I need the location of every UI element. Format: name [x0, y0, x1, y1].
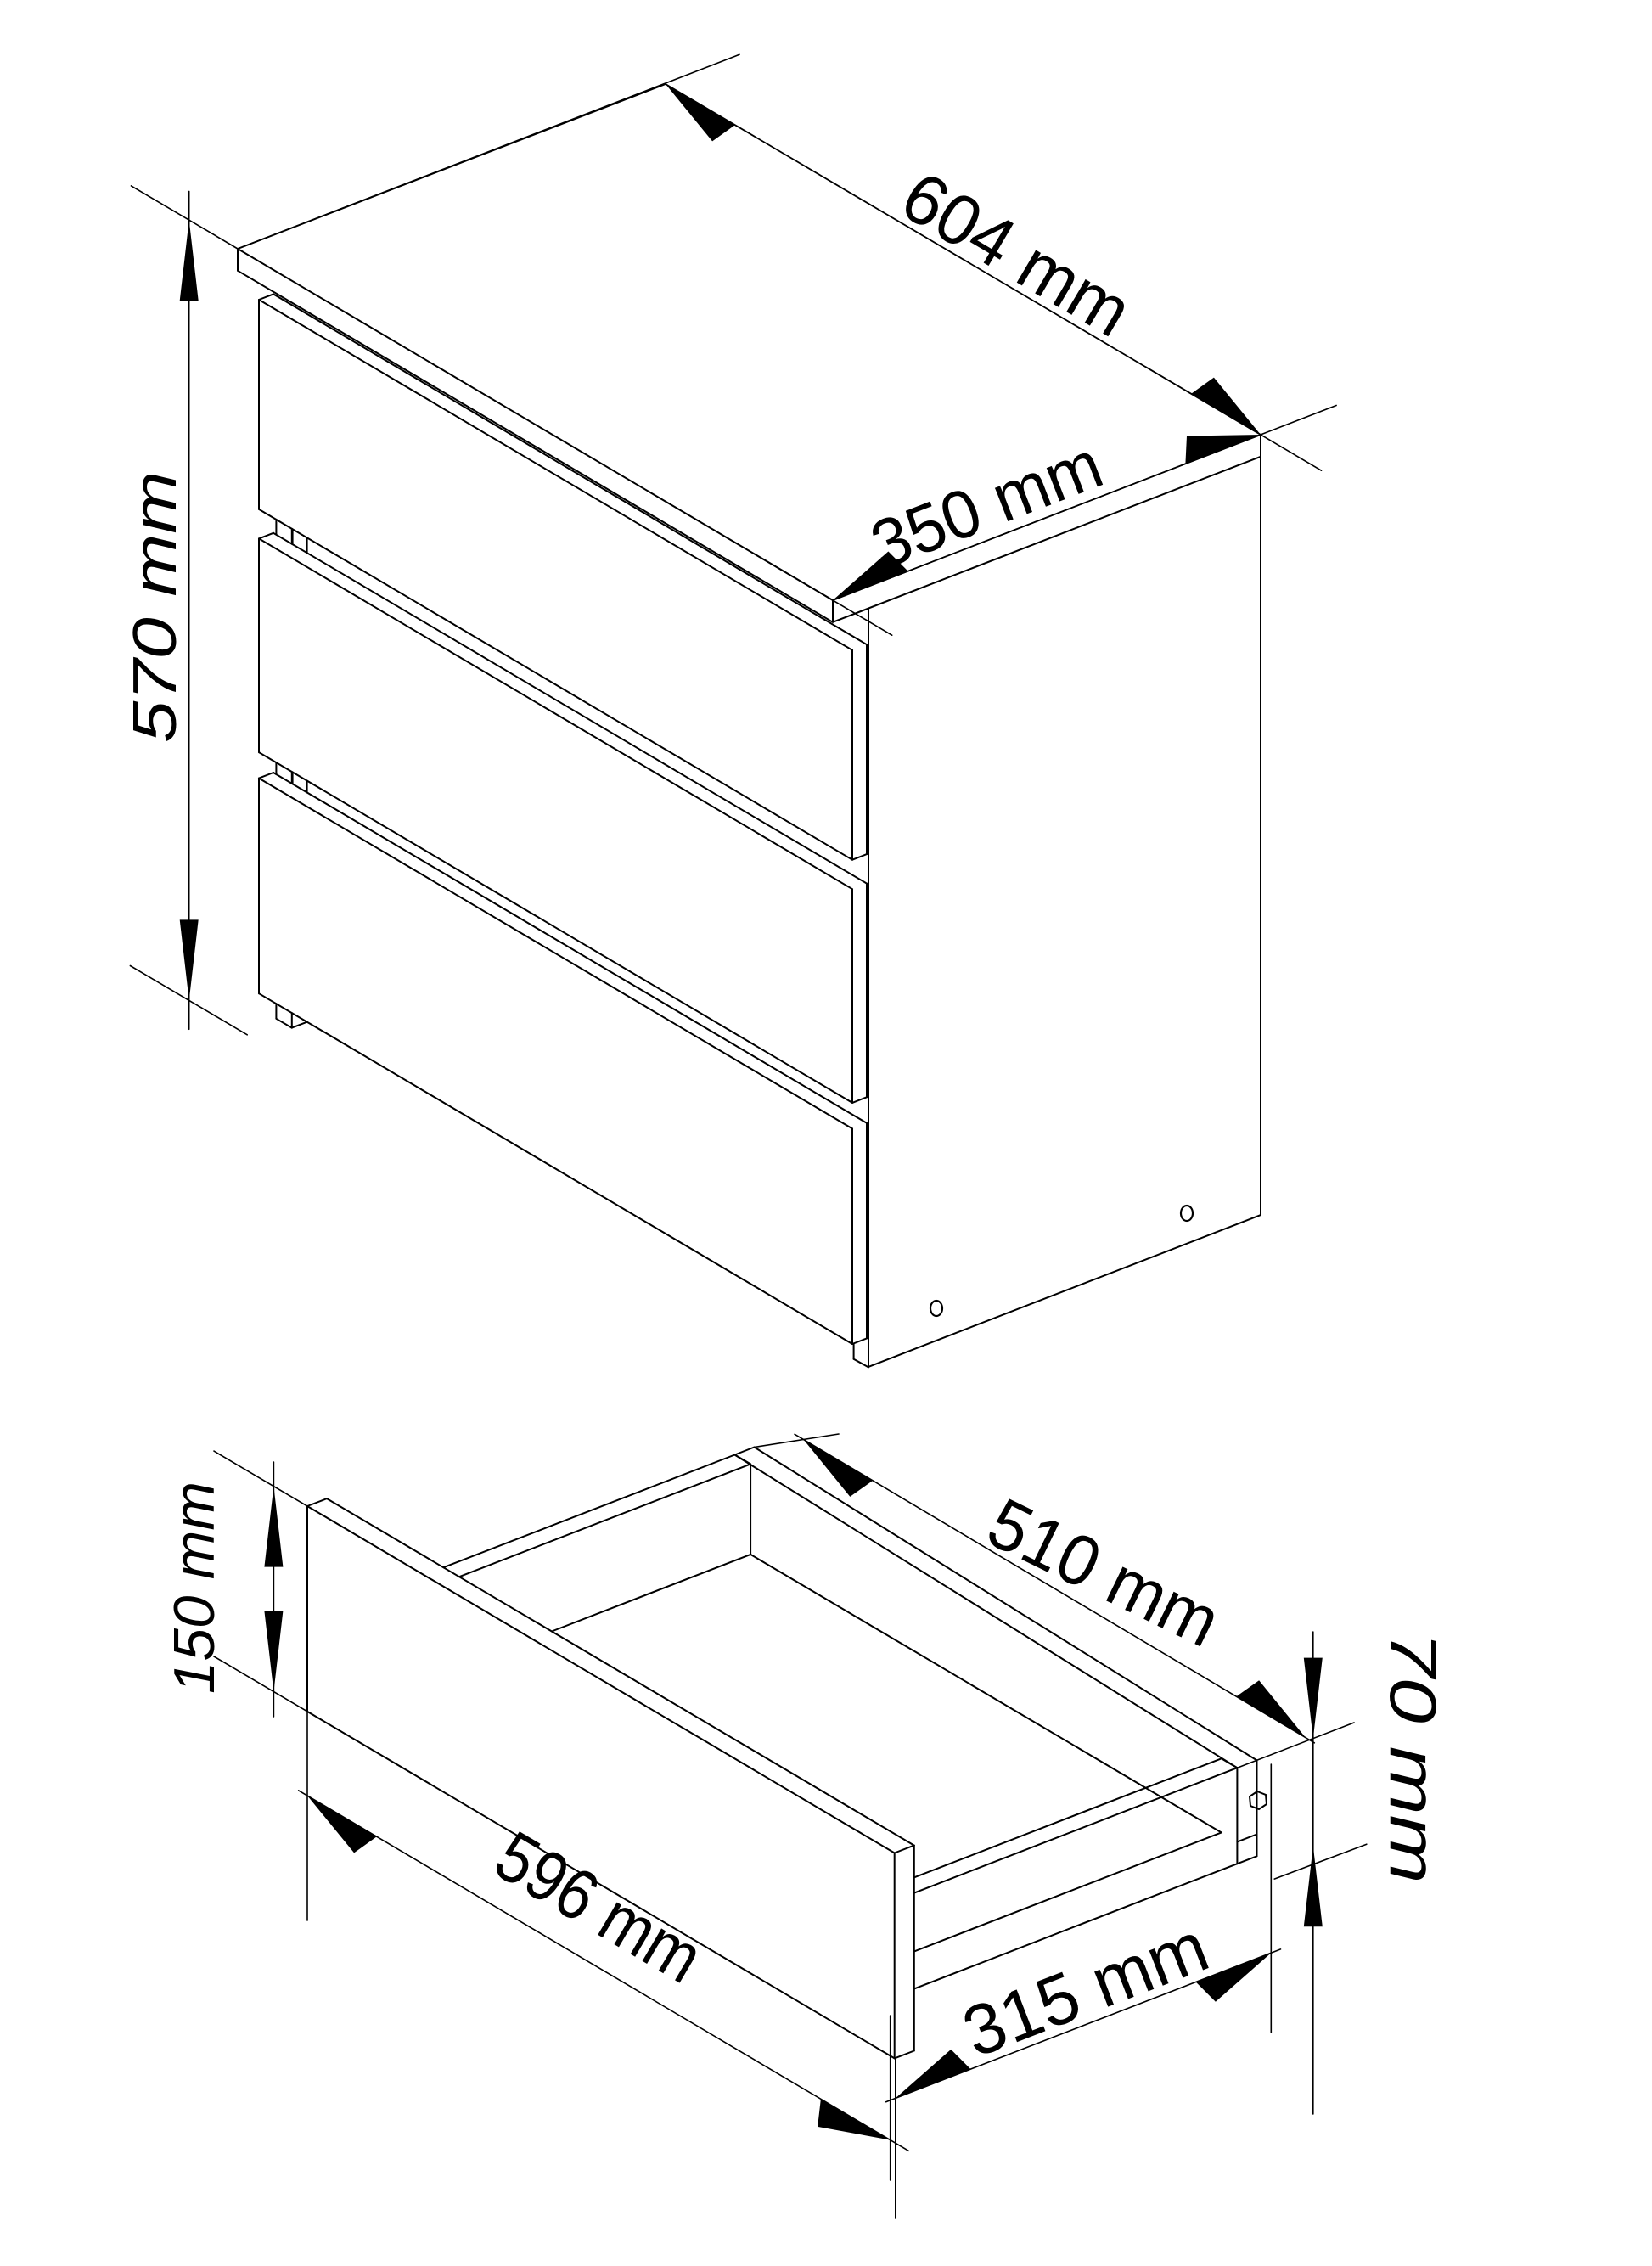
svg-text:570 mm: 570 mm	[121, 471, 189, 743]
svg-text:150 mm: 150 mm	[162, 1482, 227, 1694]
svg-text:70 mm: 70 mm	[1376, 1632, 1451, 1884]
